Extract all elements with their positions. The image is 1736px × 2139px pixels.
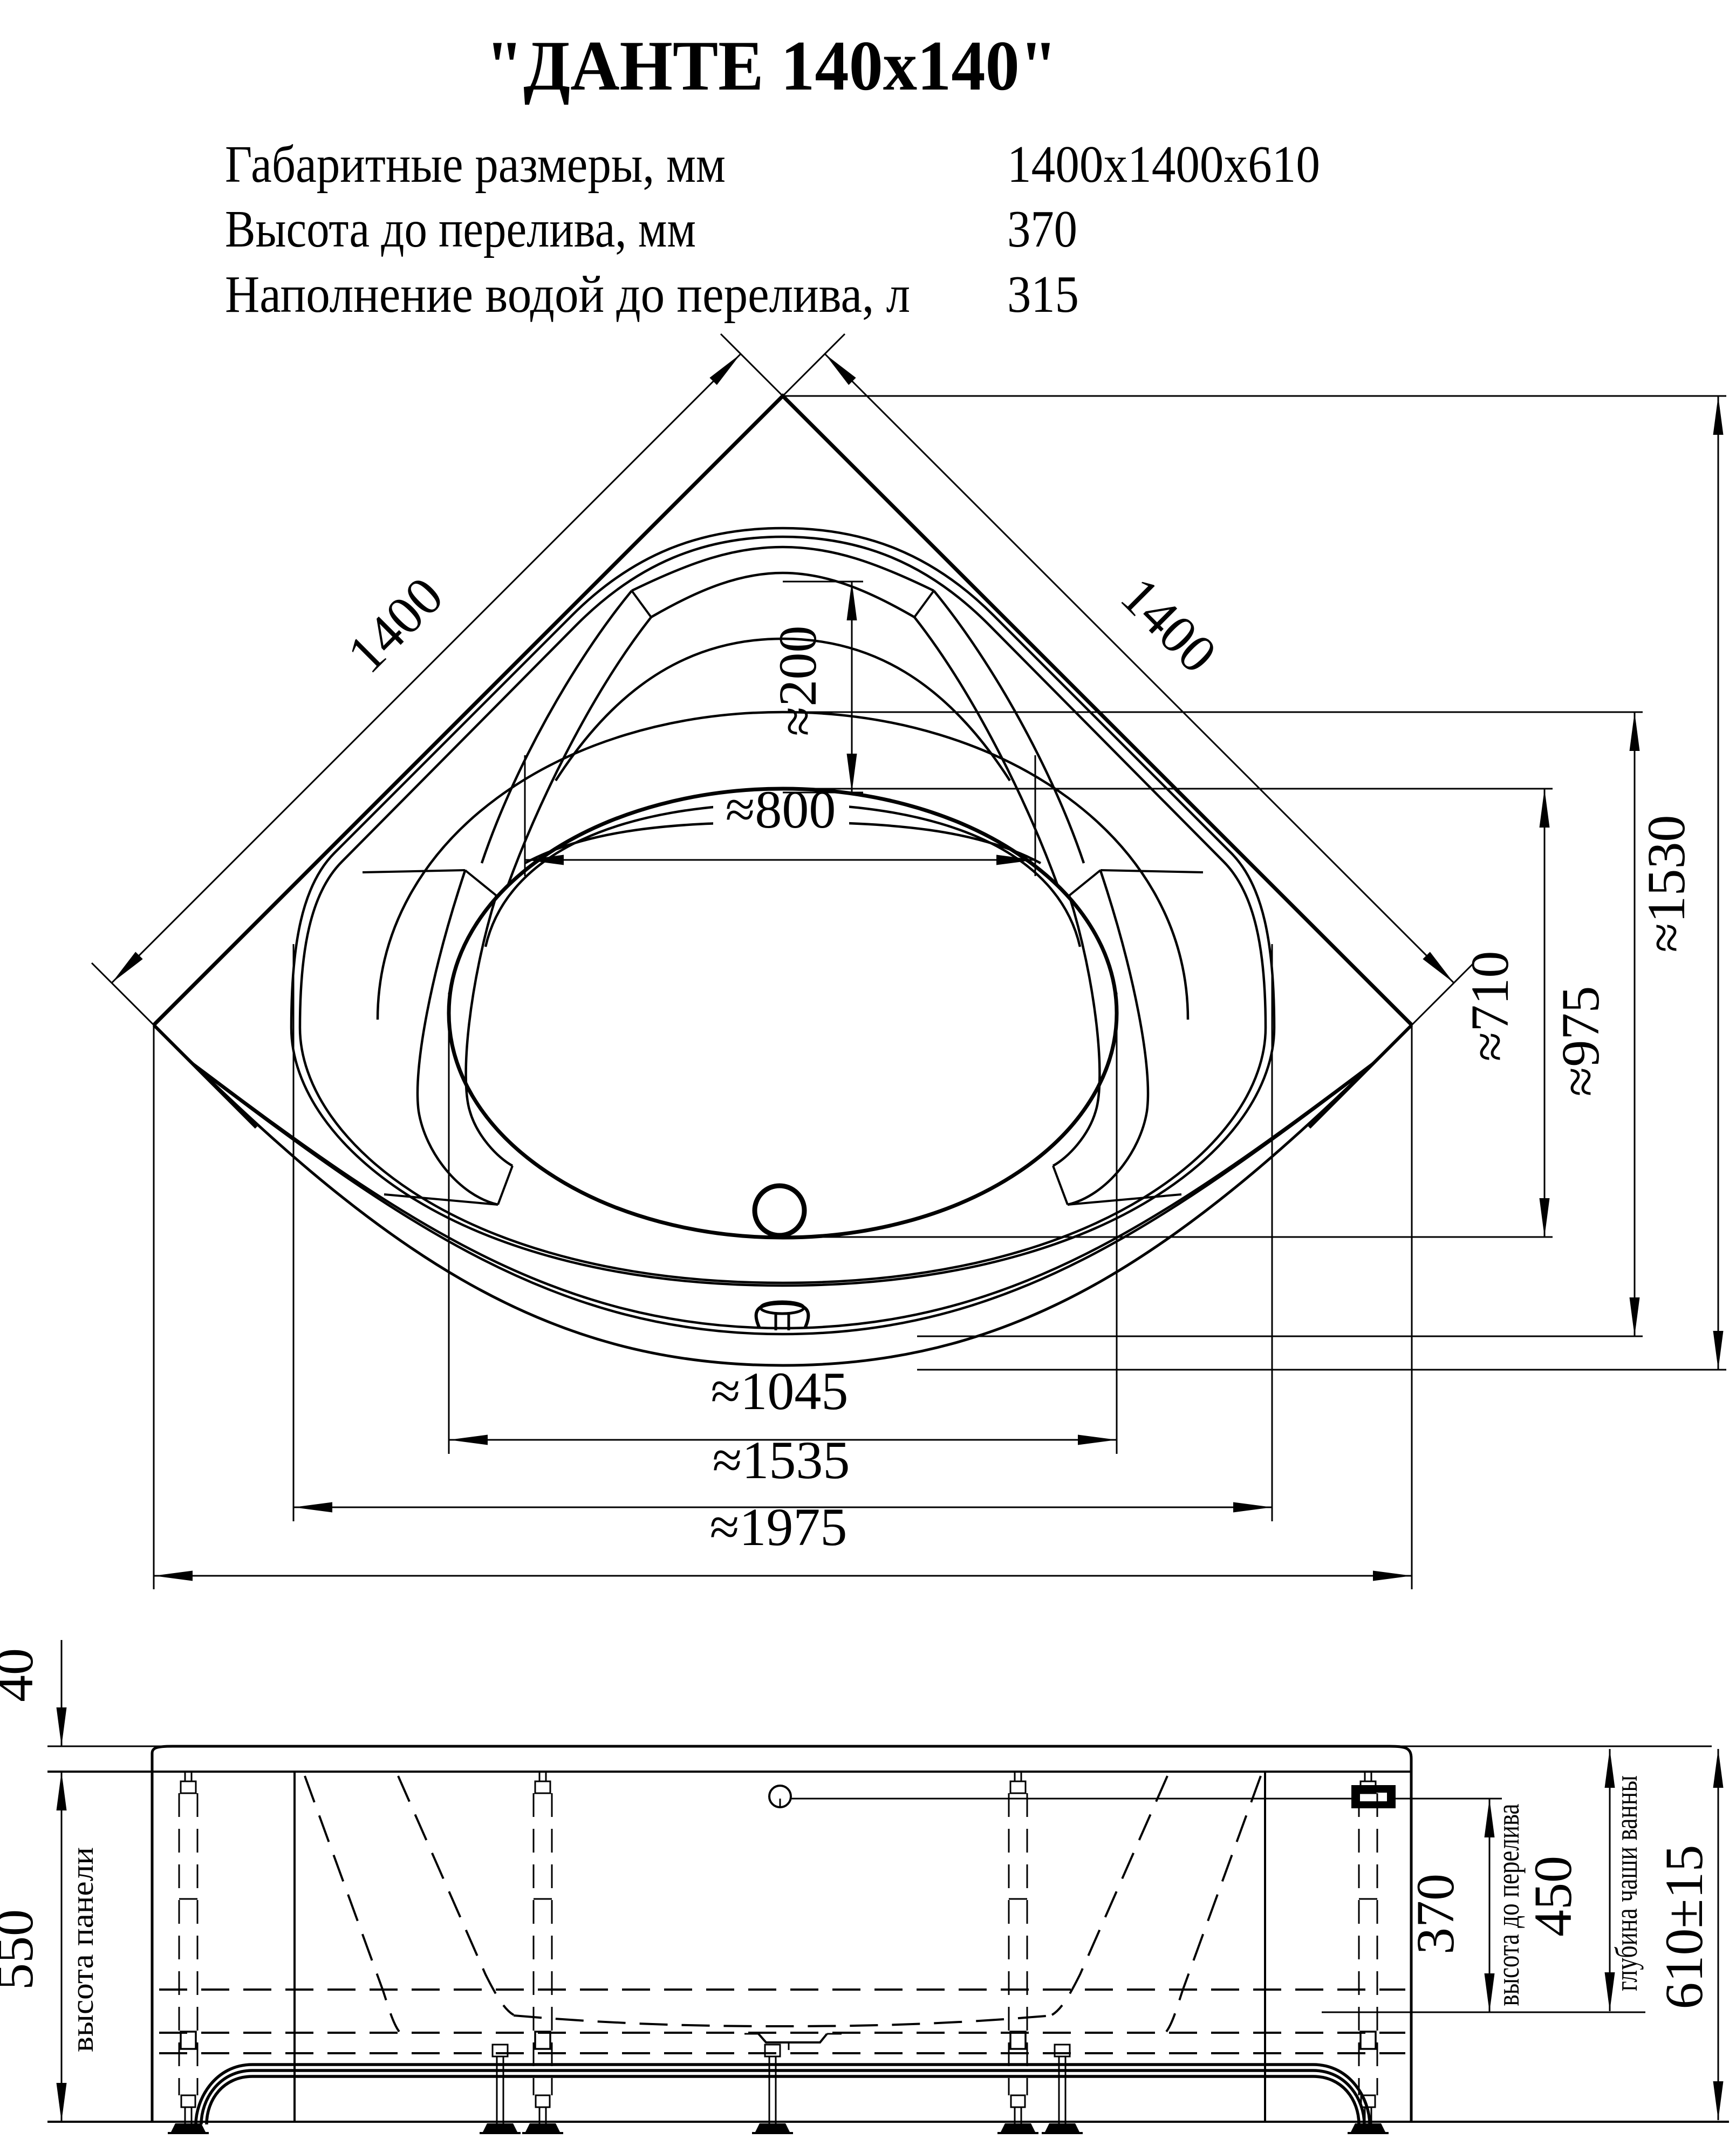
- svg-text:Высота до перелива, мм: Высота до перелива, мм: [225, 200, 696, 258]
- svg-text:610±15: 610±15: [1654, 1845, 1714, 2010]
- svg-text:370: 370: [1007, 200, 1077, 258]
- svg-text:550: 550: [0, 1909, 44, 1990]
- svg-text:≈975: ≈975: [1550, 986, 1610, 1097]
- svg-text:40: 40: [0, 1648, 44, 1702]
- svg-text:высота панели: высота панели: [65, 1847, 100, 2052]
- svg-text:Габаритные размеры, мм: Габаритные размеры, мм: [225, 135, 726, 194]
- svg-text:315: 315: [1007, 265, 1079, 324]
- svg-text:глубина чаши ванны: глубина чаши ванны: [1609, 1775, 1644, 1991]
- svg-text:≈1530: ≈1530: [1636, 815, 1696, 953]
- svg-text:450: 450: [1523, 1856, 1583, 1937]
- svg-text:≈1535: ≈1535: [713, 1430, 850, 1490]
- svg-text:высота до перелива: высота до перелива: [1491, 1804, 1526, 2006]
- svg-text:1400x1400x610: 1400x1400x610: [1007, 135, 1320, 194]
- svg-text:≈1975: ≈1975: [710, 1497, 848, 1557]
- svg-text:≈200: ≈200: [768, 626, 828, 736]
- svg-text:≈1045: ≈1045: [711, 1361, 849, 1421]
- svg-text:370: 370: [1405, 1874, 1465, 1955]
- svg-text:"ДАНТЕ 140x140": "ДАНТЕ 140x140": [486, 26, 1057, 105]
- svg-text:Наполнение водой до перелива,: Наполнение водой до перелива, л: [225, 265, 910, 324]
- svg-text:≈710: ≈710: [1460, 951, 1520, 1062]
